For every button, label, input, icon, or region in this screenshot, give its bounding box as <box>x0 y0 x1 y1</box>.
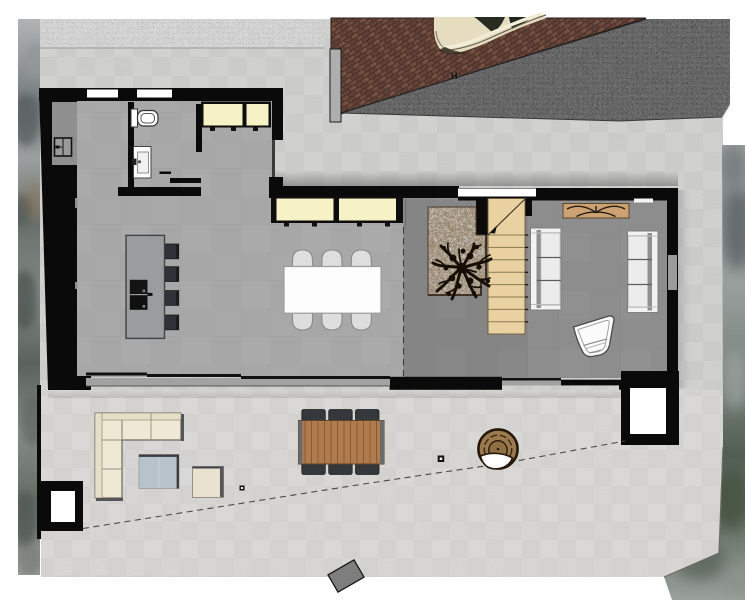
svg-text:H: H <box>451 71 458 81</box>
